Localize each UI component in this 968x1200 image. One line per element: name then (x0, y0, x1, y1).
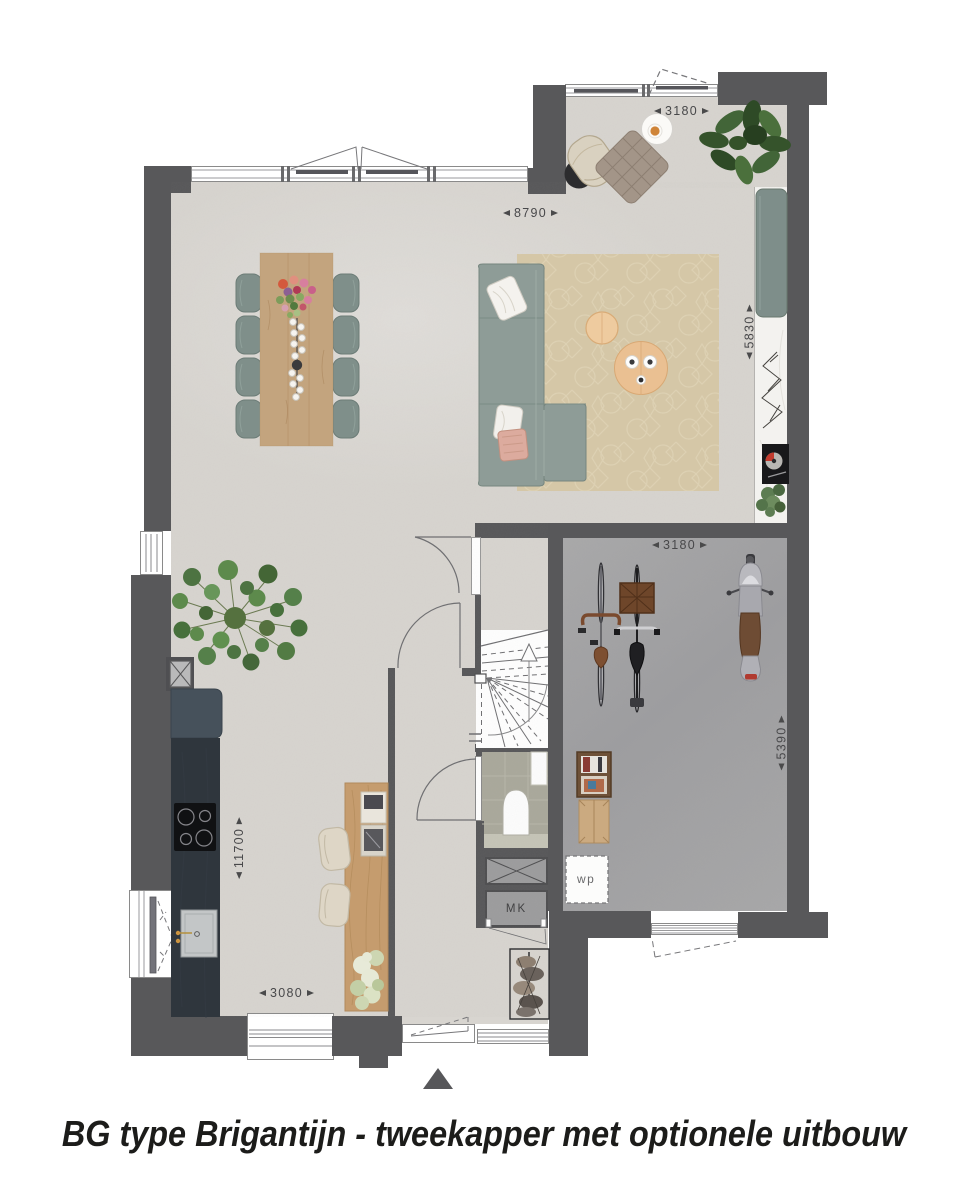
svg-text:wp: wp (576, 872, 595, 886)
